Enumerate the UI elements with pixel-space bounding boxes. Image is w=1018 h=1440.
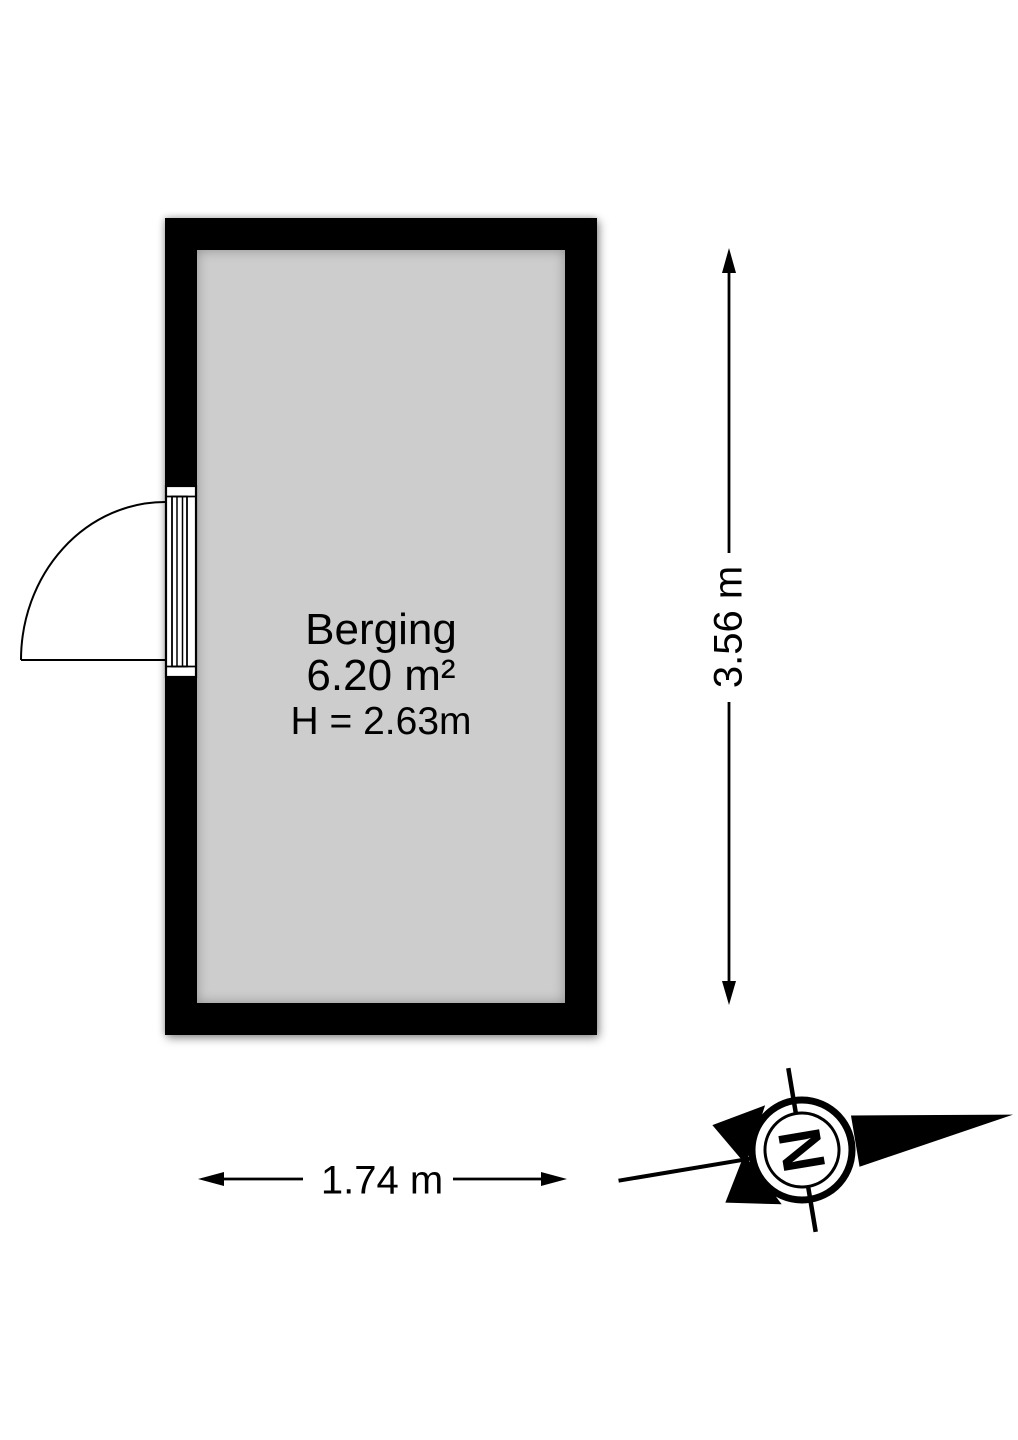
door-swing-arc bbox=[21, 502, 165, 660]
floorplan-graphics: N bbox=[0, 0, 1018, 1440]
arrowhead-left-icon bbox=[198, 1172, 224, 1186]
arrowhead-up-icon bbox=[722, 248, 736, 273]
compass-north-pointer bbox=[851, 1089, 1017, 1167]
floorplan-canvas: N Berging 6.20 m² H = 2.63m 3.56 m 1.74 … bbox=[0, 0, 1018, 1440]
room-area: 6.20 m² bbox=[290, 653, 471, 699]
room-name: Berging bbox=[290, 607, 471, 653]
vertical-dimension-label: 3.56 m bbox=[707, 566, 752, 688]
north-arrow-icon: N bbox=[605, 1033, 1018, 1263]
room-ceiling-height: H = 2.63m bbox=[290, 699, 471, 745]
arrowhead-right-icon bbox=[541, 1172, 567, 1186]
horizontal-dimension-label: 1.74 m bbox=[321, 1159, 443, 1204]
room-label: Berging 6.20 m² H = 2.63m bbox=[290, 607, 471, 745]
door-frame bbox=[166, 486, 196, 677]
arrowhead-down-icon bbox=[722, 981, 736, 1005]
door bbox=[21, 486, 196, 677]
